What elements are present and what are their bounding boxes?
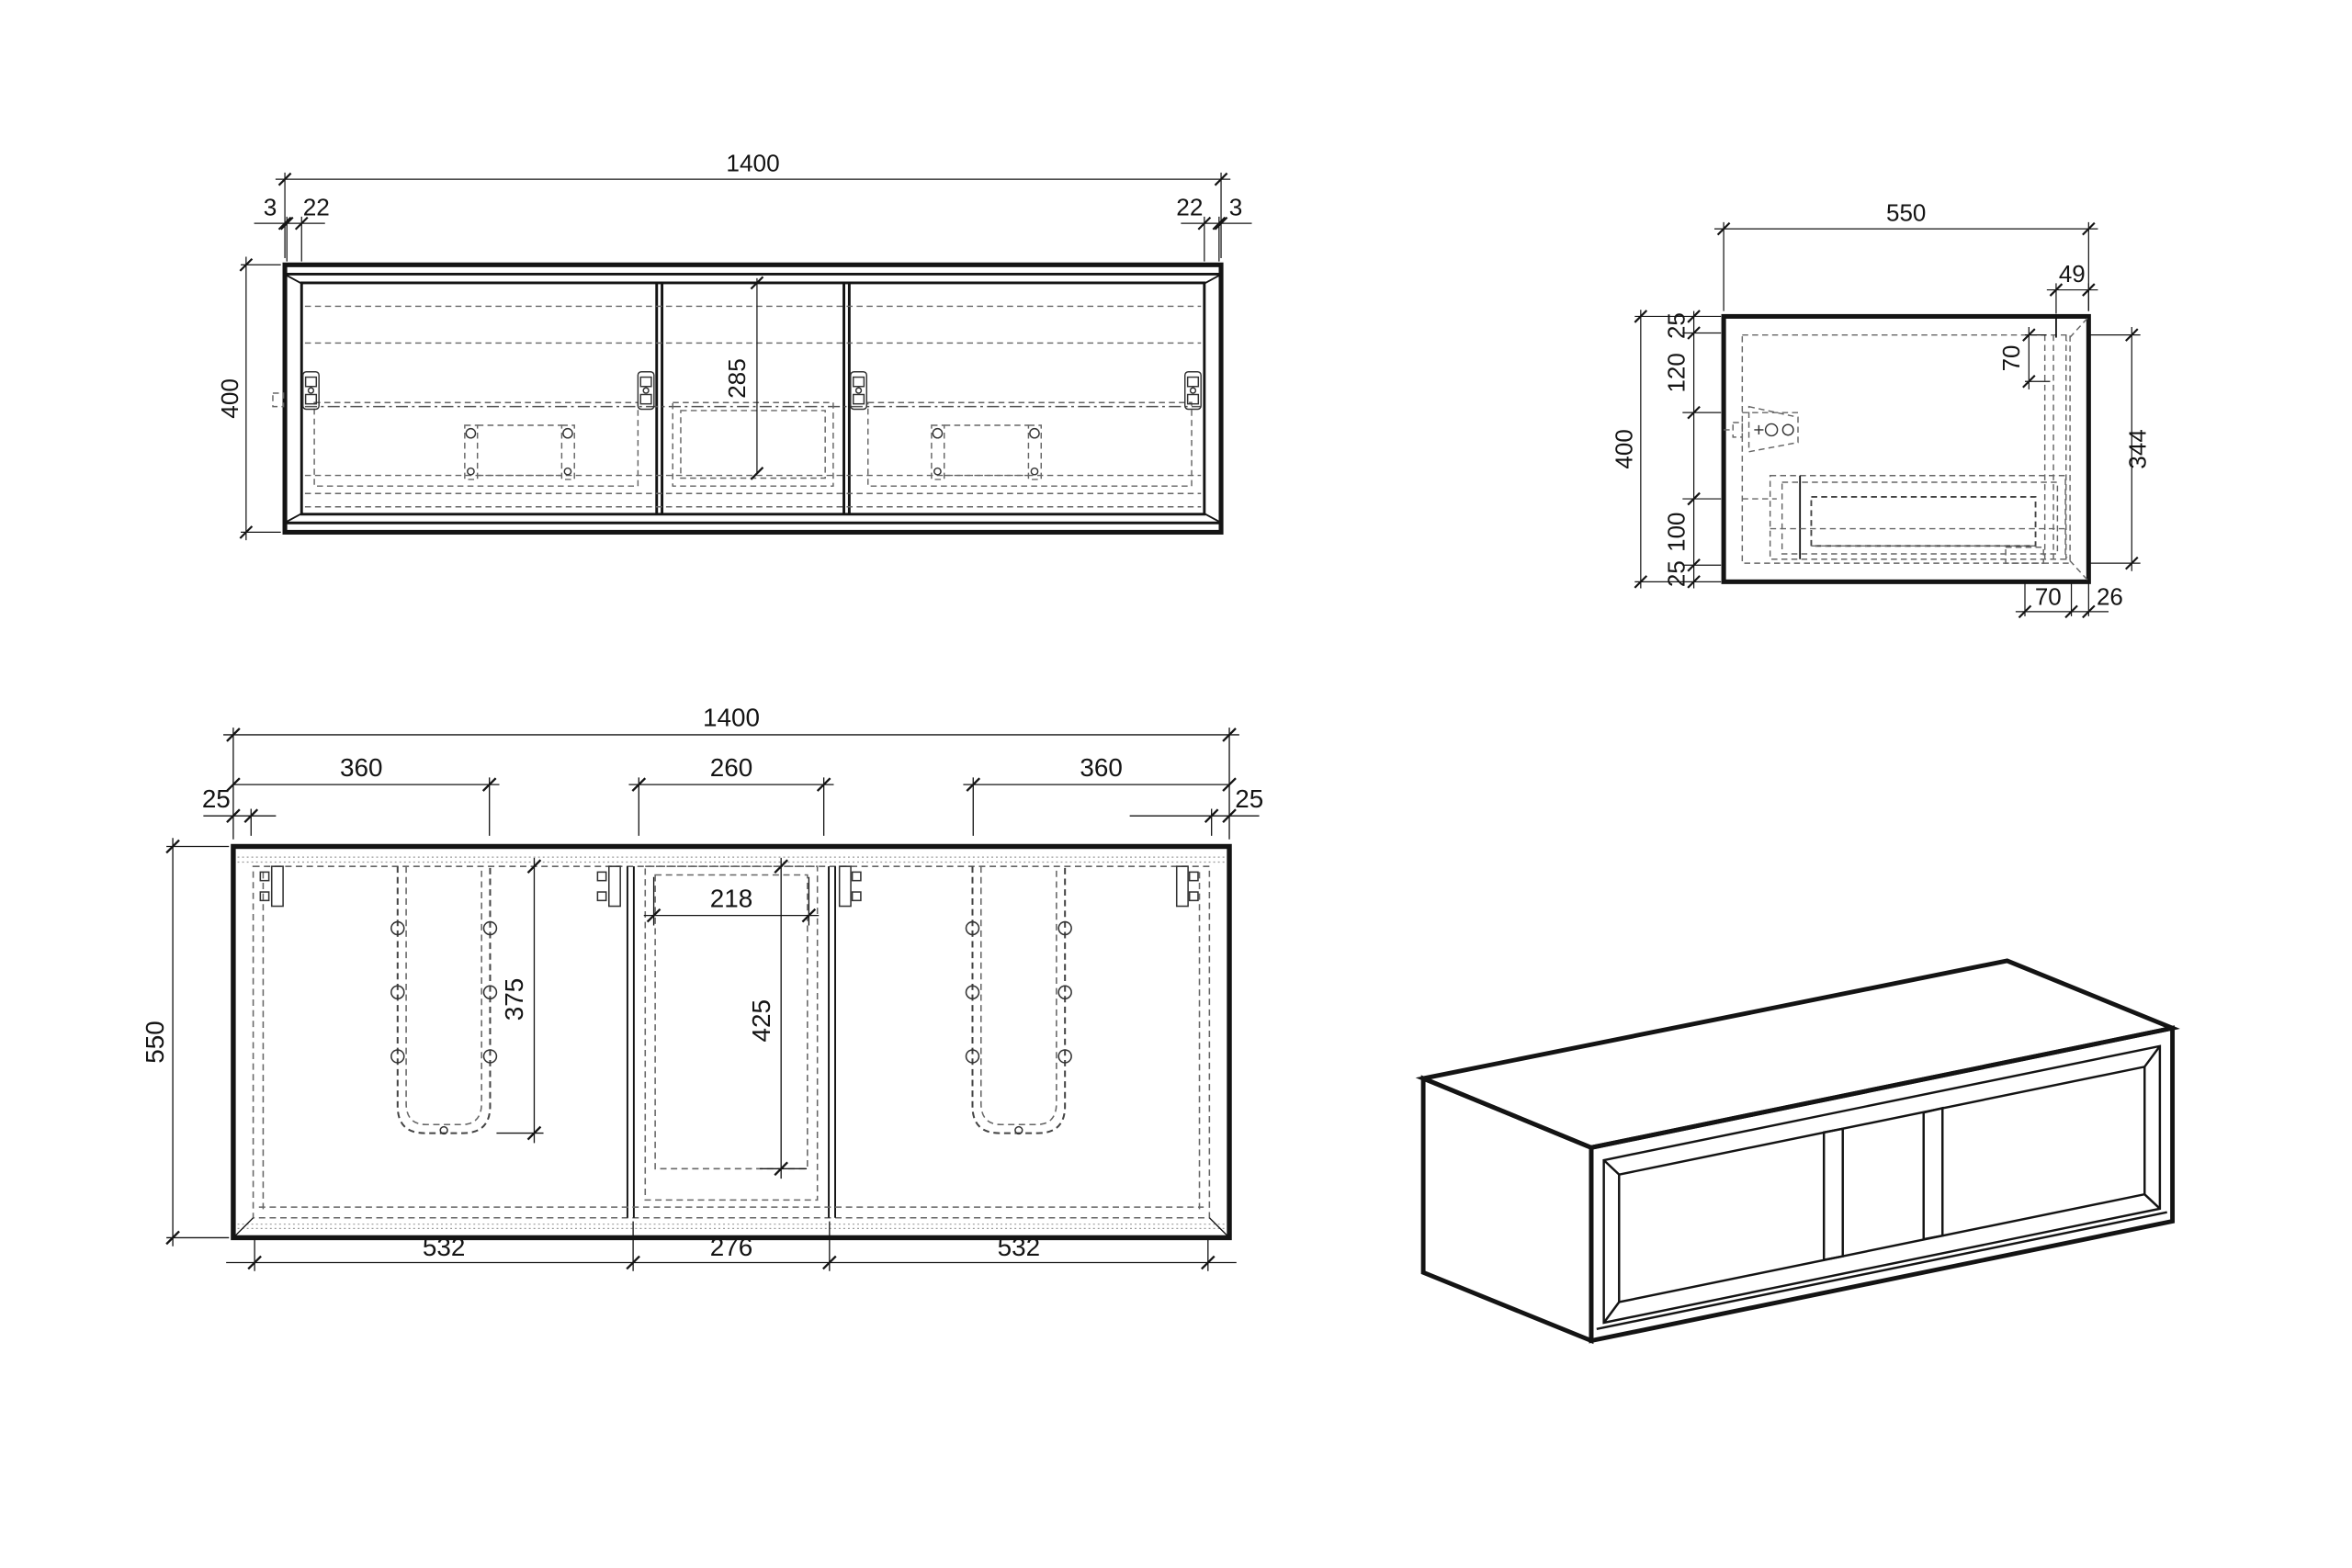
side-dim-hinge-drop-label: 120	[1663, 353, 1690, 392]
front-left-drawer-box	[314, 402, 638, 486]
front-elevation-view: 1400 3 22 22 3 400	[211, 138, 1268, 579]
drawing-sheet: { "views": { "front": { "dims": { "width…	[0, 0, 2352, 1568]
front-dim-width-label: 1400	[726, 149, 779, 176]
plan-section-view: 1400 360 260 360 25 25 550	[119, 694, 1286, 1291]
side-dim-lower-section-label: 100	[1663, 512, 1690, 551]
plan-dim-right-door-label: 360	[1080, 753, 1122, 782]
plan-dim-doors: 360 260 360	[227, 753, 1236, 836]
plan-dim-middle-depth-label: 425	[747, 999, 775, 1042]
side-dim-height-label: 400	[1610, 429, 1637, 468]
plan-right-sink-cutout	[967, 866, 1072, 1134]
iso-door-dividers	[1824, 1108, 1942, 1259]
front-dim-overall-width: 1400	[276, 149, 1230, 258]
iso-left-face	[1423, 1078, 1591, 1341]
side-dim-door-thickness-label: 26	[2097, 583, 2123, 611]
plan-dim-cutout-depth: 375	[496, 858, 543, 1144]
side-cabinet-outline	[1724, 316, 2088, 581]
side-dim-front-inset-label: 49	[2059, 260, 2086, 288]
front-hinges	[303, 372, 1201, 410]
plan-dim-middle-bay-label: 276	[710, 1233, 752, 1261]
front-dim-height-label: 400	[216, 378, 243, 419]
plan-dim-depth-label: 550	[141, 1021, 169, 1063]
plan-section-svg: 1400 360 260 360 25 25 550	[119, 694, 1286, 1291]
plan-dim-cutout-depth-label: 375	[500, 978, 528, 1021]
front-right-drawer-box	[868, 402, 1192, 486]
front-dim-opening-drop-label: 285	[723, 358, 751, 399]
iso-bottom-strip	[1597, 1213, 2167, 1329]
plan-middle-bay	[645, 866, 817, 1200]
isometric-svg	[1387, 919, 2196, 1385]
side-dim-inner-face-label: 344	[2123, 429, 2151, 468]
side-dim-bottom-thickness-label: 25	[1663, 560, 1690, 587]
side-dim-inner-face: 344	[2090, 327, 2152, 571]
plan-dim-middle-opening-label: 218	[710, 884, 752, 912]
side-section-svg: 550 49 25 120 100 25 400	[1571, 184, 2168, 635]
side-dim-depth: 550	[1714, 198, 2098, 310]
front-dim-left-frame-label: 22	[303, 193, 330, 220]
side-dim-bottom-rail-label: 70	[2035, 583, 2062, 611]
front-dim-overall-height: 400	[216, 257, 281, 541]
plan-dim-middle-depth: 425	[747, 858, 807, 1179]
side-dim-top-rail-label: 70	[1997, 344, 2025, 371]
front-dim-right-reveals: 22 3	[1176, 193, 1251, 261]
front-dim-opening-drop: 285	[723, 276, 763, 479]
plan-left-sink-cutout	[391, 866, 497, 1134]
front-dim-left-reveals: 3 22	[254, 193, 330, 261]
side-dim-bottom-rails: 70 26	[2016, 583, 2123, 618]
front-dim-left-edge-label: 3	[264, 193, 277, 220]
plan-dim-middle-door-label: 260	[710, 753, 752, 782]
side-drawer-profile	[1770, 476, 2065, 563]
plan-dim-reveals: 25 25	[202, 784, 1263, 836]
front-center-drawer-box	[673, 402, 833, 486]
plan-dim-width-label: 1400	[703, 704, 760, 732]
front-internal-dashed-lines	[273, 306, 1201, 506]
plan-dim-middle-opening: 218	[644, 877, 819, 926]
side-dim-depth-label: 550	[1886, 198, 1926, 226]
side-dim-left-stack: 25 120 100 25	[1663, 310, 1722, 589]
plan-dim-right-bay-label: 532	[998, 1233, 1040, 1261]
iso-front-face	[1591, 1028, 2173, 1340]
front-elevation-svg: 1400 3 22 22 3 400	[211, 138, 1268, 579]
side-dim-front-inset: 49	[2047, 260, 2098, 314]
isometric-view	[1387, 919, 2196, 1385]
front-cabinet-outline	[285, 265, 1221, 532]
side-hinge-detail	[1724, 407, 1798, 452]
side-section-view: 550 49 25 120 100 25 400	[1571, 184, 2168, 635]
plan-dim-left-door-label: 360	[340, 753, 382, 782]
plan-dim-depth: 550	[141, 838, 229, 1246]
front-dim-right-frame-label: 22	[1176, 193, 1203, 220]
plan-dim-left-bay-label: 532	[423, 1233, 465, 1261]
side-dim-top-rail: 70	[1997, 327, 2050, 389]
front-dim-right-edge-label: 3	[1229, 193, 1243, 220]
plan-dim-left-reveal-label: 25	[202, 784, 231, 813]
plan-dim-right-reveal-label: 25	[1235, 784, 1263, 813]
